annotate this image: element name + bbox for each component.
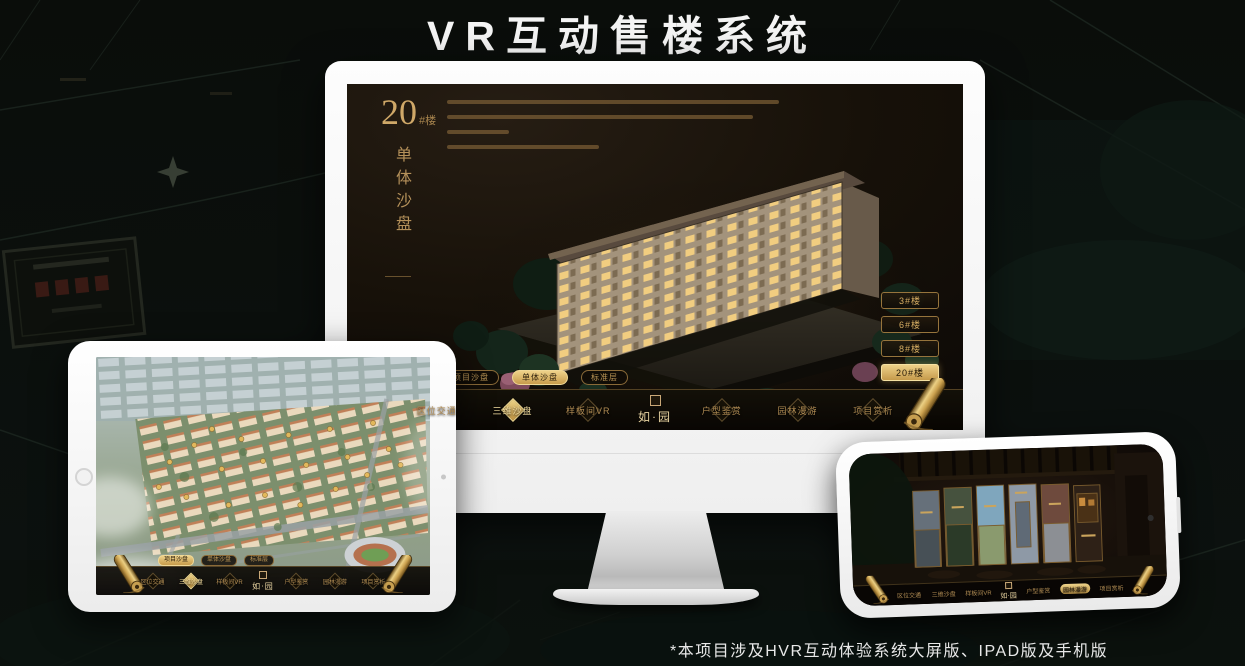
page-title: VR互动售楼系统	[0, 2, 1245, 62]
subtab-standard-floor[interactable]: 标准层	[581, 370, 628, 385]
gallery-panel-2	[944, 487, 974, 566]
nav-item-project-review[interactable]: 项目赏析	[847, 398, 899, 422]
nav-item-unit-appreciation[interactable]: 户型鉴赏	[696, 398, 748, 422]
nav-item-label: 户型鉴赏	[284, 577, 308, 586]
phone-screen: 区位交通 三维沙盘 样板间VR 如·园 户型鉴赏 园林漫游 项目赏析	[848, 444, 1167, 607]
gallery-panel-6	[1074, 485, 1103, 562]
nav-item-showroom-vr[interactable]: 样板间VR	[214, 573, 246, 589]
brand-logo: 如·园	[252, 571, 274, 592]
nav-item-unit-appreciation[interactable]: 户型鉴赏	[280, 573, 312, 589]
footnote-text: *本项目涉及HVR互动体验系统大屏版、IPAD版及手机版	[670, 637, 1108, 661]
nav-item-label: 项目赏析	[361, 577, 385, 586]
home-button[interactable]	[75, 468, 93, 486]
nav-item-label: 样板间VR	[216, 577, 242, 586]
nav-item-label: 项目赏析	[1099, 583, 1123, 593]
brand-seal-icon	[1005, 581, 1012, 588]
title-divider	[385, 276, 411, 277]
nav-item-garden-roam-active[interactable]: 园林漫游	[1060, 583, 1090, 594]
block-number-unit: #楼	[419, 115, 436, 127]
nav-item-label: 三维沙盘	[492, 404, 532, 417]
block-subtitle-vertical: 单体沙盘	[389, 146, 413, 266]
monitor-stand	[587, 511, 725, 593]
nav-item-garden-roam[interactable]: 园林漫游	[319, 573, 351, 589]
nav-item-showroom-vr[interactable]: 样板间VR	[965, 586, 992, 599]
subtab-single-sandbox[interactable]: 单体沙盘	[201, 555, 237, 566]
brand-logo-text: 如·园	[1000, 590, 1017, 601]
brand-seal-icon	[259, 571, 267, 579]
nav-item-garden-roam[interactable]: 园林漫游	[772, 398, 824, 422]
nav-item-label: 样板间VR	[965, 587, 992, 597]
gold-scroll-icon[interactable]	[899, 378, 951, 430]
gallery-panel-3	[976, 485, 1006, 565]
brand-logo-text: 如·园	[252, 581, 274, 592]
promo-poster: VR互动售楼系统	[0, 0, 1245, 666]
nav-item-location-traffic[interactable]: 区位交通	[896, 588, 922, 601]
floor-button-group: 3#楼 6#楼 8#楼 20#楼	[881, 292, 939, 381]
gold-scroll-icon[interactable]	[110, 555, 148, 593]
floor-button-8[interactable]: 8#楼	[881, 340, 939, 357]
block-title: 20#楼 单体沙盘	[381, 94, 436, 130]
nav-item-showroom-vr[interactable]: 样板间VR	[562, 398, 614, 422]
nav-item-label: 样板间VR	[566, 404, 611, 417]
nav-item-project-review[interactable]: 项目赏析	[1098, 581, 1124, 594]
brand-seal-icon	[650, 395, 661, 406]
gallery-panel-5	[1041, 484, 1071, 563]
monitor-base	[553, 589, 759, 605]
nav-item-3d-sandbox-active[interactable]: 三维沙盘	[487, 398, 539, 422]
description-text-lines	[447, 100, 847, 160]
nav-item-label: 园林漫游	[323, 577, 347, 586]
tablet-sub-tabs: 项目沙盘 单体沙盘 标准层	[158, 555, 274, 566]
nav-item-label: 区位交通	[141, 577, 165, 586]
subtab-single-sandbox-active[interactable]: 单体沙盘	[512, 370, 568, 385]
gold-scroll-icon[interactable]	[378, 555, 416, 593]
brand-logo-text: 如·园	[638, 408, 672, 425]
phone-device: 区位交通 三维沙盘 样板间VR 如·园 户型鉴赏 园林漫游 项目赏析	[835, 431, 1181, 619]
nav-item-label: 园林漫游	[1063, 584, 1087, 594]
brand-logo: 如·园	[638, 395, 672, 425]
nav-item-unit-appreciation[interactable]: 户型鉴赏	[1025, 584, 1051, 597]
subtab-project-sandbox-active[interactable]: 项目沙盘	[158, 555, 194, 566]
nav-item-label: 三维沙盘	[179, 577, 203, 586]
nav-item-label: 三维沙盘	[931, 588, 955, 598]
camera-dot	[441, 474, 446, 479]
monitor-sub-tabs: 项目沙盘 单体沙盘 标准层	[443, 370, 628, 385]
nav-item-3d-sandbox-active[interactable]: 三维沙盘	[175, 573, 207, 589]
nav-item-label: 区位交通	[417, 404, 457, 417]
floor-button-3[interactable]: 3#楼	[881, 292, 939, 309]
gallery-panel-1	[913, 490, 942, 567]
brand-logo: 如·园	[1000, 581, 1017, 601]
nav-item-label: 区位交通	[897, 590, 921, 600]
tablet-screen: 项目沙盘 单体沙盘 标准层 区位交通 三维沙盘 样板间VR 如·园 户型鉴赏 园…	[96, 357, 430, 595]
tablet-device: 项目沙盘 单体沙盘 标准层 区位交通 三维沙盘 样板间VR 如·园 户型鉴赏 园…	[68, 341, 456, 612]
gallery-panel-4	[1009, 484, 1039, 564]
plaque-decoration	[3, 238, 144, 347]
nav-item-label: 户型鉴赏	[1026, 585, 1050, 595]
nav-item-3d-sandbox[interactable]: 三维沙盘	[930, 587, 956, 600]
nav-item-label: 户型鉴赏	[702, 404, 742, 417]
gold-scroll-icon[interactable]	[863, 575, 892, 604]
block-number: 20	[381, 92, 417, 132]
floor-button-6[interactable]: 6#楼	[881, 316, 939, 333]
nav-item-label: 项目赏析	[853, 404, 893, 417]
nav-item-label: 园林漫游	[777, 404, 817, 417]
subtab-standard-floor[interactable]: 标准层	[244, 555, 274, 566]
gold-scroll-icon[interactable]	[1129, 566, 1158, 595]
